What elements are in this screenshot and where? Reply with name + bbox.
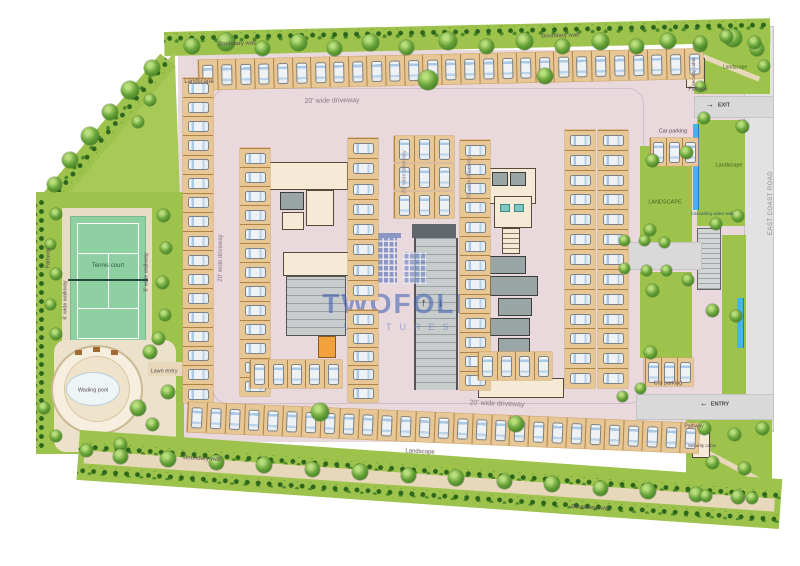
map-label: Cascading water wall [691, 212, 734, 217]
site-plan: EAST COAST ROAD ↑ ↓ [0, 0, 800, 566]
car-icon [191, 407, 203, 428]
tree-icon [62, 152, 78, 168]
parking-slot [460, 217, 490, 236]
ramp-up-arrow-icon: ↑ [421, 298, 427, 309]
parking-slot [598, 348, 628, 368]
tree-icon [661, 265, 672, 276]
parking-slot [565, 130, 595, 150]
car-icon [439, 167, 450, 188]
parking-slot [394, 192, 414, 218]
tree-icon [146, 418, 159, 431]
tree-icon [121, 81, 139, 99]
tree-icon [644, 346, 657, 359]
lobby-seat [500, 204, 510, 212]
car-icon [245, 267, 266, 278]
tower-b-room [498, 298, 532, 316]
parking-slot [598, 130, 628, 150]
tree-icon [102, 104, 118, 120]
car-icon [188, 102, 209, 113]
parking-slot [460, 198, 490, 217]
parking-slot [565, 209, 595, 229]
parking-slot [604, 419, 624, 450]
car-icon [240, 63, 251, 84]
parking-slot [478, 53, 497, 83]
parking-slot [460, 54, 479, 84]
tree-icon [144, 60, 160, 76]
parking-slot [240, 262, 270, 281]
parking-slot [183, 269, 213, 288]
tower-b-lift [510, 172, 526, 186]
tennis-center-line [108, 253, 109, 309]
parking-slot [305, 360, 323, 388]
parking-slot [414, 192, 434, 218]
tree-icon [700, 490, 712, 502]
parking-slot [348, 239, 378, 259]
car-icon [188, 369, 209, 380]
parking-slot [183, 174, 213, 193]
car-icon [669, 142, 680, 163]
parking-slot [183, 231, 213, 250]
car-icon [614, 55, 625, 76]
tree-icon [639, 235, 650, 246]
parking-slot [460, 275, 490, 294]
car-icon [353, 351, 374, 362]
tree-icon [132, 116, 144, 128]
car-icon [570, 353, 591, 364]
tree-icon [758, 60, 770, 72]
car-icon [210, 407, 222, 428]
car-icon [665, 427, 677, 448]
parking-slot [338, 408, 358, 439]
car-icon [254, 364, 265, 385]
car-icon [570, 274, 591, 285]
car-icon [439, 195, 450, 216]
parking-slot [225, 404, 245, 435]
car-icon [188, 197, 209, 208]
car-icon [371, 60, 382, 81]
tree-icon [255, 41, 270, 56]
car-icon [353, 184, 374, 195]
parking-slot [348, 260, 378, 280]
car-icon [273, 364, 284, 385]
tree-icon [311, 403, 329, 421]
parking-slot [628, 50, 647, 80]
parking-slot [291, 57, 310, 87]
tree-icon [399, 40, 414, 55]
tree-icon [161, 385, 175, 399]
parking-slot [565, 368, 595, 388]
parking-slot [240, 243, 270, 262]
map-label: Security cabin [692, 58, 697, 86]
car-icon [465, 318, 486, 329]
parking-row [250, 360, 342, 388]
tree-icon [130, 400, 146, 416]
parking-slot [217, 59, 236, 89]
tree-icon [694, 36, 707, 49]
car-icon [465, 202, 486, 213]
road-name-label: EAST COAST ROAD [768, 168, 774, 238]
car-icon [315, 62, 326, 83]
car-icon [245, 343, 266, 354]
entry-arrow-icon: ← [700, 400, 708, 408]
tower-b-base [478, 378, 564, 398]
tennis-net [68, 279, 148, 281]
tree-icon [736, 120, 749, 133]
parking-slot [598, 170, 628, 190]
parking-slot [471, 414, 491, 445]
parking-slot [497, 53, 516, 83]
parking-slot [244, 404, 264, 435]
car-icon [188, 121, 209, 132]
parking-slot [240, 186, 270, 205]
car-icon [188, 312, 209, 323]
parking-slot [434, 192, 454, 218]
parking-slot [183, 193, 213, 212]
car-icon [188, 331, 209, 342]
parking-slot [183, 288, 213, 307]
car-icon [352, 61, 363, 82]
utility-room [318, 336, 336, 358]
car-icon [464, 58, 475, 79]
parking-slot [565, 249, 595, 269]
car-icon [603, 274, 624, 285]
car-icon [570, 155, 591, 166]
tree-icon [706, 456, 719, 469]
tree-icon [256, 457, 272, 473]
car-icon [188, 293, 209, 304]
tree-icon [160, 451, 176, 467]
parking-slot [240, 167, 270, 186]
car-icon [229, 408, 241, 429]
tree-icon [646, 284, 659, 297]
map-label: 6' wide walkway [144, 252, 150, 291]
tree-icon [184, 38, 200, 54]
parking-slot [348, 158, 378, 178]
car-icon [651, 54, 662, 75]
parking-slot [566, 418, 586, 449]
parking-slot [598, 190, 628, 210]
parking-slot [598, 309, 628, 329]
car-icon [245, 324, 266, 335]
bench [75, 350, 82, 355]
tree-icon [593, 481, 608, 496]
tree-icon [113, 449, 128, 464]
tree-icon [401, 468, 416, 483]
parking-slot [183, 250, 213, 269]
car-icon [501, 356, 512, 377]
car-icon [245, 210, 266, 221]
car-icon [570, 294, 591, 305]
car-icon [482, 356, 493, 377]
car-icon [296, 62, 307, 83]
parking-slot [553, 52, 572, 82]
car-icon [465, 222, 486, 233]
map-label: Lawn entry [151, 369, 178, 375]
parking-slot [310, 57, 329, 87]
parking-slot [609, 50, 628, 80]
parking-slot [183, 384, 213, 403]
car-icon [646, 426, 658, 447]
car-icon [419, 195, 430, 216]
car-icon [589, 423, 601, 444]
tree-icon [327, 41, 342, 56]
car-icon [465, 298, 486, 309]
car-icon [188, 236, 209, 247]
map-label: Landscape [716, 163, 743, 169]
tree-icon [508, 416, 524, 432]
tree-icon [497, 474, 512, 489]
tree-icon [80, 444, 93, 457]
parking-slot [348, 280, 378, 300]
parking-slot [547, 417, 567, 448]
parking-slot [661, 422, 681, 453]
car-icon [570, 135, 591, 146]
tree-icon [305, 462, 320, 477]
car-icon [245, 191, 266, 202]
parking-slot [385, 55, 404, 85]
parking-slot [460, 236, 490, 255]
car-icon [419, 139, 430, 160]
parking-row [598, 130, 628, 388]
car-icon [570, 254, 591, 265]
parking-slot [565, 229, 595, 249]
parking-slot [348, 199, 378, 219]
car-icon [188, 389, 209, 400]
map-label: 20' wide driveway [218, 234, 224, 281]
parking-slot [183, 212, 213, 231]
car-icon [188, 216, 209, 227]
tree-icon [152, 332, 165, 345]
parking-slot [268, 360, 286, 388]
car-icon [595, 55, 606, 76]
parking-slot [183, 346, 213, 365]
tower-b-lift [492, 172, 508, 186]
parking-slot [348, 384, 378, 402]
parking-slot [565, 289, 595, 309]
parking-slot [452, 413, 472, 444]
parking-slot [591, 51, 610, 81]
car-icon [520, 57, 531, 78]
map-label: 6' wide walkway [63, 280, 69, 319]
car-icon [633, 54, 644, 75]
car-icon [328, 364, 339, 385]
parking-slot [329, 57, 348, 87]
tree-icon [728, 428, 741, 441]
car-icon [248, 409, 260, 430]
car-icon [476, 419, 488, 440]
parking-slot [515, 352, 534, 380]
parking-slot [414, 136, 434, 162]
parking-slot [240, 301, 270, 320]
car-icon [603, 314, 624, 325]
car-icon [576, 56, 587, 77]
tree-icon [746, 492, 758, 504]
parking-slot [348, 310, 378, 328]
tree-icon [144, 94, 156, 106]
parking-slot [287, 360, 305, 388]
parking-slot [460, 332, 490, 351]
parking-slot [565, 328, 595, 348]
map-label: Wading pool [78, 388, 108, 394]
parking-slot [528, 416, 548, 447]
parking-slot [460, 294, 490, 313]
car-icon [465, 241, 486, 252]
car-icon [465, 279, 486, 290]
car-icon [570, 314, 591, 325]
tree-icon [617, 391, 628, 402]
parking-slot [460, 313, 490, 332]
car-icon [381, 415, 393, 436]
parking-slot [395, 411, 415, 442]
tower-b-stair [502, 228, 520, 254]
tree-icon [156, 276, 169, 289]
car-icon [538, 356, 549, 377]
parking-slot [348, 328, 378, 346]
tree-icon [698, 112, 710, 124]
car-icon [603, 333, 624, 344]
tree-icon [38, 402, 50, 414]
car-icon [465, 337, 486, 348]
tower-a-room [282, 212, 304, 230]
exit-arrow-icon: → [706, 101, 714, 109]
car-icon [570, 234, 591, 245]
parking-row [183, 78, 213, 403]
parking-slot [460, 140, 490, 159]
tree-icon [479, 39, 494, 54]
parking-slot [357, 409, 377, 440]
parking-slot [460, 255, 490, 274]
central-ramp [414, 238, 458, 390]
tree-icon [640, 483, 656, 499]
map-label: Landscape [723, 66, 747, 71]
tree-icon [730, 310, 742, 322]
parking-slot [187, 402, 207, 433]
parking-slot [183, 155, 213, 174]
parking-row [394, 192, 454, 218]
car-icon [245, 305, 266, 316]
car-icon [465, 260, 486, 271]
car-icon [627, 425, 639, 446]
map-label: Pathway [684, 425, 703, 430]
car-icon [353, 143, 374, 154]
car-icon [570, 423, 582, 444]
parking-slot [565, 269, 595, 289]
map-label: Tennis court [92, 263, 124, 269]
tree-icon [50, 430, 62, 442]
car-icon [570, 333, 591, 344]
parking-slot [324, 360, 342, 388]
tree-icon [352, 464, 368, 480]
parking-slot [250, 360, 268, 388]
tower-b-room [484, 256, 526, 274]
map-label: Security cabin [688, 444, 716, 449]
car-icon [245, 172, 266, 183]
parking-slot [183, 97, 213, 116]
car-icon [519, 356, 530, 377]
lobby-seat [514, 204, 524, 212]
car-icon [353, 314, 374, 325]
car-icon [570, 373, 591, 384]
tower-a-lift [280, 192, 304, 210]
car-icon [670, 54, 681, 75]
tree-icon [439, 32, 457, 50]
car-icon [483, 58, 494, 79]
tree-icon [592, 33, 609, 50]
parking-slot [348, 56, 367, 86]
tree-icon [732, 210, 744, 222]
map-label: Landscape [184, 79, 213, 85]
parking-slot [263, 405, 283, 436]
car-icon [457, 418, 469, 439]
water-wall [693, 124, 699, 210]
tree-icon [680, 146, 693, 159]
tree-icon [160, 242, 172, 254]
car-icon [353, 244, 374, 255]
car-icon [399, 195, 410, 216]
car-icon [188, 159, 209, 170]
tree-icon [50, 328, 62, 340]
car-icon [438, 417, 450, 438]
map-label: LANDSCAPE [648, 200, 681, 206]
tree-icon [738, 462, 751, 475]
car-icon [603, 155, 624, 166]
parking-slot [565, 348, 595, 368]
parking-slot [348, 179, 378, 199]
parking-slot [585, 419, 605, 450]
tower-a-block [268, 162, 348, 190]
tree-icon [748, 36, 761, 49]
parking-slot [478, 352, 497, 380]
tower-a-ramp [286, 276, 346, 336]
parking-row [348, 138, 378, 300]
tree-icon [555, 39, 570, 54]
parking-slot [565, 190, 595, 210]
car-icon [446, 59, 457, 80]
parking-slot [565, 170, 595, 190]
bench [93, 347, 100, 352]
car-icon [603, 214, 624, 225]
water-wall [737, 298, 744, 348]
tree-icon [629, 39, 644, 54]
car-icon [495, 419, 507, 440]
parking-slot [434, 136, 454, 162]
parking-slot [348, 365, 378, 383]
car-icon [603, 353, 624, 364]
car-icon [570, 214, 591, 225]
car-icon [245, 229, 266, 240]
car-icon [188, 350, 209, 361]
car-icon [570, 194, 591, 205]
car-icon [259, 63, 270, 84]
car-icon [419, 167, 430, 188]
car-icon [188, 255, 209, 266]
parking-slot [414, 164, 434, 190]
tower-b-room [490, 276, 538, 296]
car-icon [353, 333, 374, 344]
map-label: Pathway [688, 88, 707, 93]
car-icon [603, 135, 624, 146]
car-icon [400, 415, 412, 436]
tree-icon [45, 299, 56, 310]
car-icon [353, 285, 374, 296]
parking-slot [235, 59, 254, 89]
car-icon [362, 414, 374, 435]
car-icon [603, 294, 624, 305]
map-label: 20' wide driveway [467, 156, 473, 199]
car-icon [502, 57, 513, 78]
tree-icon [641, 265, 652, 276]
map-label: EXIT [718, 103, 730, 109]
